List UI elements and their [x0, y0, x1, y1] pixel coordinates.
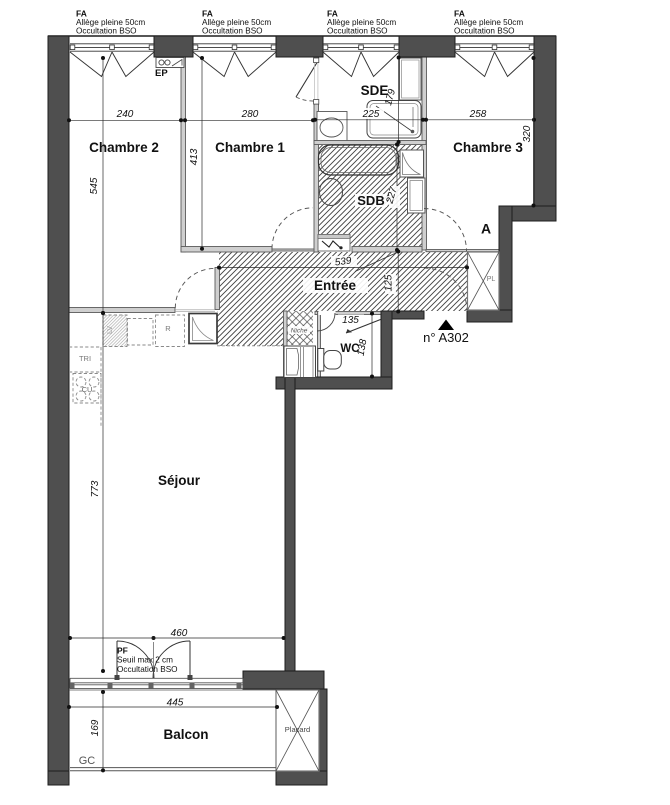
svg-text:258: 258: [469, 109, 487, 120]
svg-text:SDE: SDE: [361, 83, 389, 98]
svg-text:R: R: [165, 324, 171, 333]
svg-text:Balcon: Balcon: [163, 727, 208, 742]
svg-text:240: 240: [116, 109, 134, 120]
svg-text:EP: EP: [155, 68, 168, 79]
svg-text:Occultation BSO: Occultation BSO: [202, 27, 263, 36]
svg-text:Occultation BSO: Occultation BSO: [454, 27, 515, 36]
svg-text:125: 125: [384, 274, 395, 291]
svg-text:169: 169: [90, 719, 101, 736]
svg-text:Chambre 1: Chambre 1: [215, 140, 285, 155]
svg-text:773: 773: [90, 480, 101, 497]
svg-text:445: 445: [167, 698, 184, 709]
svg-text:PF: PF: [117, 646, 128, 656]
svg-text:A: A: [481, 221, 491, 237]
svg-text:460: 460: [171, 628, 188, 639]
svg-text:FA: FA: [76, 9, 87, 19]
svg-text:CU: CU: [82, 385, 93, 394]
svg-text:Niche: Niche: [291, 328, 308, 335]
svg-text:Seuil max 2 cm: Seuil max 2 cm: [117, 656, 173, 665]
svg-text:Placard: Placard: [285, 725, 310, 734]
svg-text:320: 320: [522, 125, 533, 142]
svg-text:LV: LV: [107, 326, 114, 334]
svg-text:Entrée: Entrée: [314, 278, 357, 293]
svg-text:PL: PL: [487, 276, 496, 283]
svg-text:FA: FA: [454, 9, 465, 19]
svg-text:GC: GC: [79, 755, 96, 767]
svg-text:Chambre 2: Chambre 2: [89, 140, 159, 155]
svg-text:n° A302: n° A302: [423, 330, 469, 345]
svg-text:135: 135: [342, 315, 359, 326]
svg-text:545: 545: [89, 177, 100, 194]
svg-text:FA: FA: [327, 9, 338, 19]
svg-text:SDB: SDB: [357, 193, 384, 208]
svg-text:Occultation BSO: Occultation BSO: [117, 665, 178, 674]
svg-text:Chambre 3: Chambre 3: [453, 140, 523, 155]
svg-text:FA: FA: [202, 9, 213, 19]
svg-text:280: 280: [241, 109, 259, 120]
svg-text:Occultation BSO: Occultation BSO: [327, 27, 388, 36]
svg-text:Occultation BSO: Occultation BSO: [76, 27, 137, 36]
svg-text:413: 413: [189, 148, 200, 165]
svg-text:TRI: TRI: [79, 354, 91, 363]
svg-text:Séjour: Séjour: [158, 473, 201, 488]
svg-text:225: 225: [362, 109, 380, 120]
